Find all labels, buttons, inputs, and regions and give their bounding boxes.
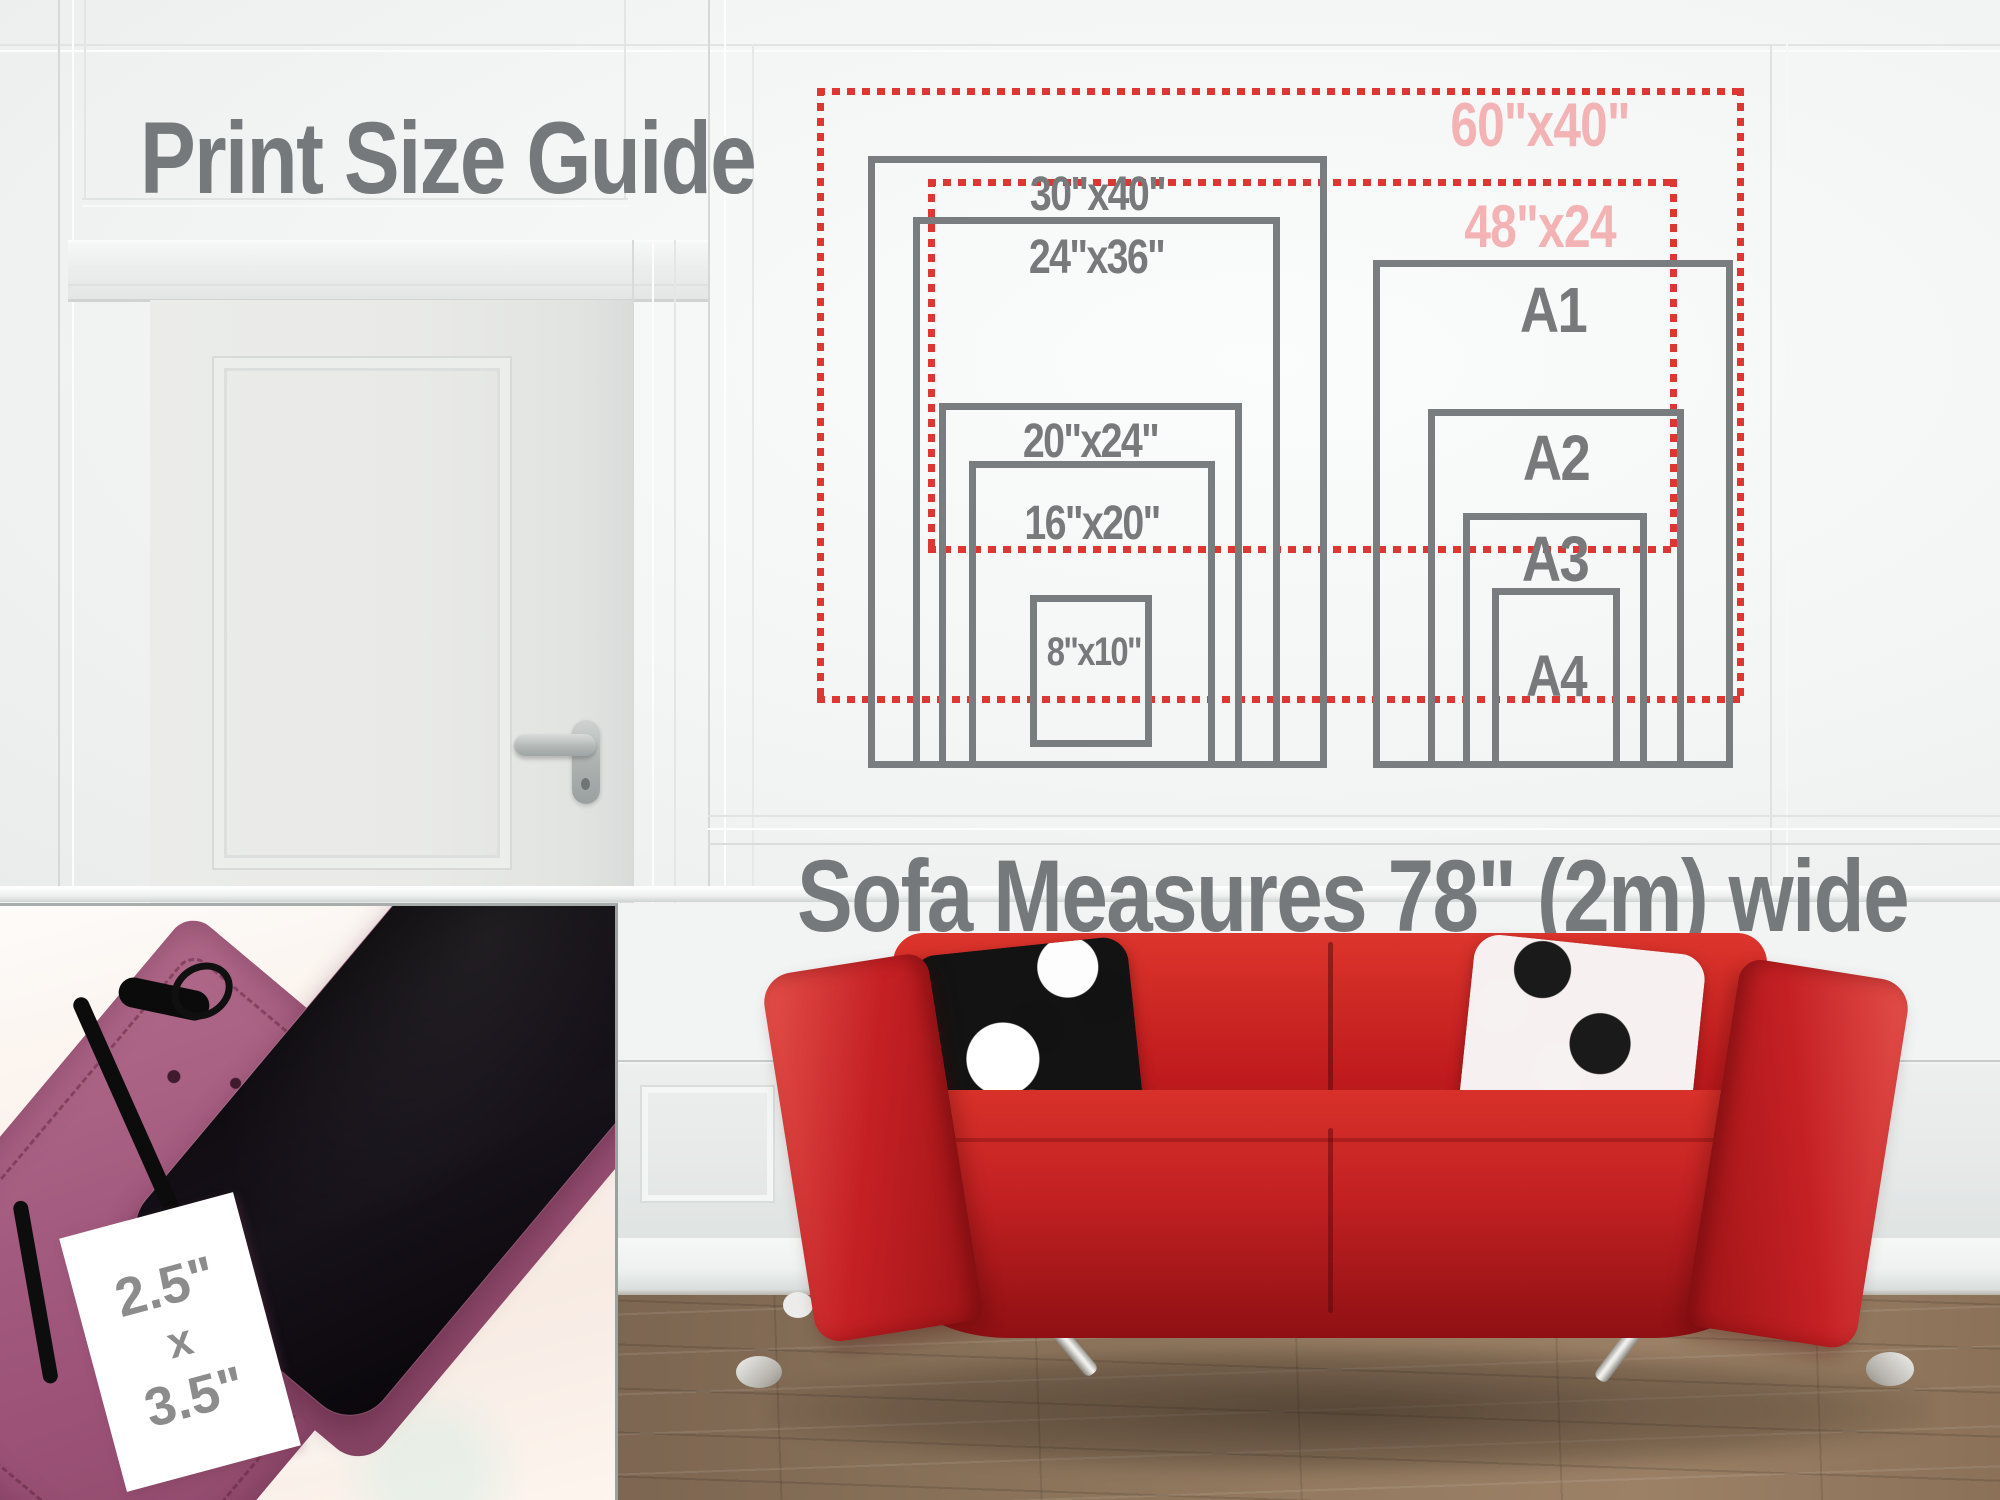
door-lintel [68, 240, 708, 302]
door-keyhole [581, 778, 590, 790]
door-handle-lever [514, 734, 596, 756]
dashed-edge-right [1737, 88, 1744, 703]
door-frame-right-highlight [652, 240, 654, 903]
right-wall-panel-highlight [1786, 44, 1788, 889]
wainscot-panel [640, 1085, 775, 1203]
print-size-label-a1: A1 [1406, 273, 1700, 347]
sofa-seat-crease [905, 1138, 1755, 1142]
left-wall-molding-highlight [72, 0, 74, 902]
print-size-frame-a4: A4 [1492, 588, 1620, 768]
dashed-size-label-48x24: 48"x24 [1424, 192, 1656, 261]
door-frame-right-shadow [632, 240, 634, 903]
door-handle [572, 720, 600, 804]
dashed-edge-left [817, 88, 824, 703]
overdoor-panel-left [84, 0, 86, 200]
print-size-label-a4: A4 [1508, 643, 1605, 710]
print-size-frame-8x10: 8"x10" [1030, 595, 1152, 747]
wall-band-top [708, 815, 2000, 817]
page-title: Print Size Guide [140, 100, 755, 217]
left-wall-molding [58, 0, 60, 902]
sofa-floor-shadow [770, 1345, 1930, 1475]
sofa-rear-foot [783, 1292, 813, 1318]
product-image: 60"x40" 48"x24 30"x40" 24"x36" 20"x24" 1… [0, 0, 2000, 1500]
print-size-label-16x20: 16"x20" [997, 496, 1187, 551]
sofa-seat-seam [1328, 1128, 1333, 1313]
sofa-foot-left [736, 1356, 782, 1388]
sofa-foot-right [1866, 1352, 1914, 1386]
door-frame-right-outer [674, 240, 676, 903]
door-recessed-panel [212, 356, 512, 870]
wall-band-highlight [708, 828, 2000, 830]
dashed-size-label-60x40: 60"x40" [1424, 90, 1656, 161]
phone-width-label: 2.5" [109, 1244, 222, 1331]
print-size-label-30x40: 30"x40" [915, 167, 1280, 222]
door-lintel-inner-line [68, 284, 708, 286]
right-wall-panel-line [1770, 44, 1772, 889]
print-size-label-a3: A3 [1483, 522, 1628, 596]
print-size-label-24x36: 24"x36" [952, 230, 1241, 285]
phone-height-label: 3.5" [138, 1354, 251, 1441]
print-size-label-8x10: 8"x10" [1047, 630, 1136, 675]
cornice-highlight [0, 50, 2000, 52]
phone-case-inset-photo: 2.5" x 3.5" [0, 903, 618, 1500]
phone-size-separator: x [162, 1314, 199, 1370]
cornice-molding [0, 44, 2000, 46]
print-size-label-a2: A2 [1453, 421, 1659, 495]
